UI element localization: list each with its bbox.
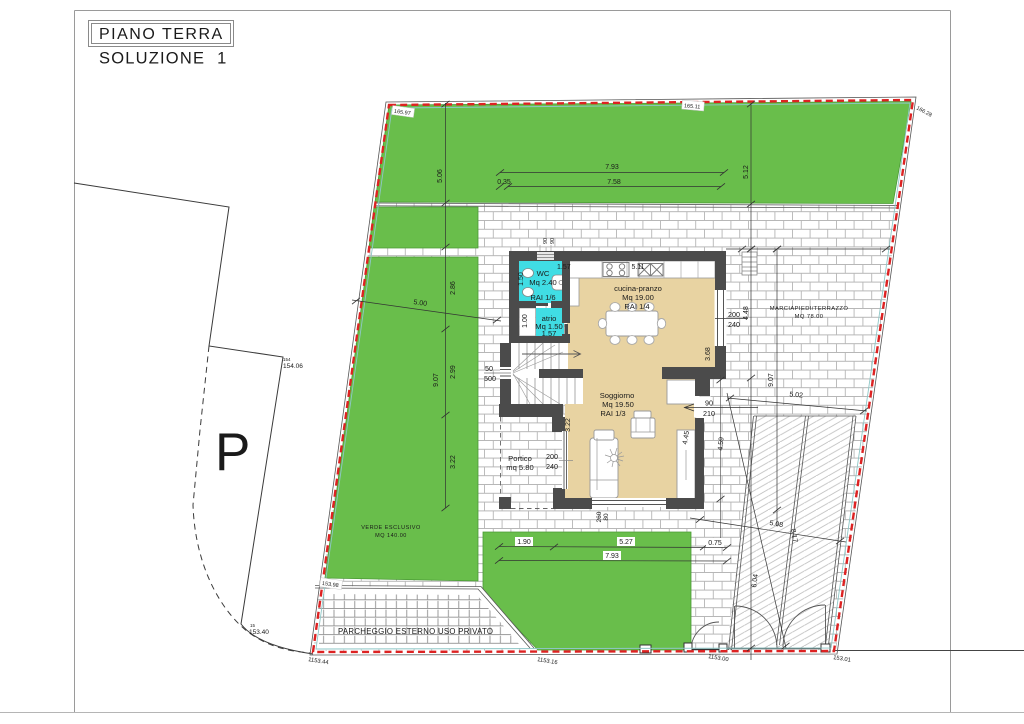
svg-text:7.93: 7.93	[605, 164, 619, 171]
svg-text:1.50: 1.50	[518, 272, 525, 286]
svg-text:2.86: 2.86	[450, 281, 457, 295]
svg-text:RAI 1/4: RAI 1/4	[624, 302, 649, 311]
svg-text:200: 200	[728, 310, 740, 319]
svg-text:210: 210	[703, 409, 715, 418]
svg-text:7.58: 7.58	[607, 179, 621, 186]
svg-text:0.75: 0.75	[708, 540, 722, 547]
svg-text:2.99: 2.99	[450, 365, 457, 379]
svg-text:4.59: 4.59	[717, 437, 725, 451]
svg-text:RAI 1/3: RAI 1/3	[600, 409, 625, 418]
svg-text:P: P	[215, 423, 250, 482]
svg-text:5.02: 5.02	[789, 391, 803, 399]
svg-text:MQ 140.00: MQ 140.00	[375, 533, 407, 539]
svg-text:MQ 78.00: MQ 78.00	[795, 314, 824, 320]
svg-text:153.40: 153.40	[249, 629, 269, 636]
svg-text:80: 80	[603, 513, 610, 521]
svg-text:90: 90	[550, 238, 556, 244]
svg-text:3.22: 3.22	[565, 418, 572, 432]
svg-text:1.57: 1.57	[557, 264, 571, 271]
svg-text:5.11: 5.11	[631, 264, 644, 271]
svg-text:0.35: 0.35	[497, 179, 511, 186]
svg-text:90: 90	[543, 238, 549, 244]
svg-text:15: 15	[250, 623, 256, 628]
svg-text:240: 240	[546, 462, 558, 471]
svg-text:154.06: 154.06	[283, 363, 303, 370]
svg-text:3.68: 3.68	[705, 347, 712, 361]
svg-text:Mq 19.50: Mq 19.50	[602, 400, 634, 409]
svg-text:50: 50	[485, 364, 493, 373]
svg-text:5.06: 5.06	[437, 169, 444, 183]
svg-text:Portico: Portico	[508, 454, 532, 463]
svg-text:90: 90	[705, 399, 713, 408]
svg-text:PARCHEGGIO ESTERNO USO PRIVATO: PARCHEGGIO ESTERNO USO PRIVATO	[338, 627, 493, 636]
svg-text:260: 260	[596, 511, 603, 522]
svg-text:RAI 1/6: RAI 1/6	[530, 293, 555, 302]
svg-text:200: 200	[546, 452, 558, 461]
svg-text:500: 500	[484, 374, 496, 383]
svg-text:MARCIAPIEDI/TERRAZZO: MARCIAPIEDI/TERRAZZO	[770, 306, 849, 312]
svg-text:cucina-pranzo: cucina-pranzo	[614, 284, 662, 293]
svg-text:1.00: 1.00	[522, 314, 529, 328]
svg-text:7.93: 7.93	[605, 553, 619, 560]
svg-text:1.57: 1.57	[542, 329, 557, 338]
svg-text:5.27: 5.27	[619, 539, 633, 546]
svg-text:5.12: 5.12	[743, 165, 750, 179]
svg-text:Mq 2.40: Mq 2.40	[529, 278, 556, 287]
svg-text:WC: WC	[537, 269, 550, 278]
svg-text:1.90: 1.90	[517, 539, 531, 546]
svg-text:154: 154	[283, 357, 291, 362]
svg-text:3.22: 3.22	[450, 455, 457, 469]
svg-text:Mq 19.00: Mq 19.00	[622, 293, 654, 302]
svg-text:9.07: 9.07	[433, 373, 440, 387]
svg-text:240: 240	[728, 320, 740, 329]
svg-text:4.48: 4.48	[743, 306, 750, 320]
svg-text:Soggiorno: Soggiorno	[600, 391, 635, 400]
svg-text:VERDE ESCLUSIVO: VERDE ESCLUSIVO	[361, 525, 421, 531]
svg-text:9.07: 9.07	[768, 373, 775, 387]
svg-text:PIANO TERRA: PIANO TERRA	[99, 26, 224, 43]
svg-text:mq 5.80: mq 5.80	[506, 463, 533, 472]
